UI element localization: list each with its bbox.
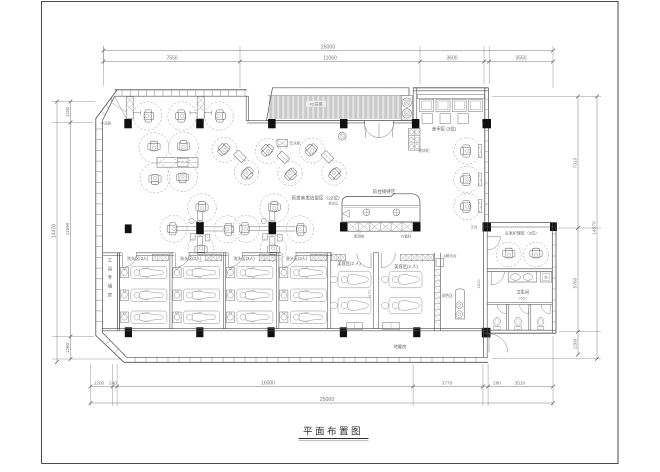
svg-text:7550: 7550 [166,55,177,61]
svg-text:产品柜: 产品柜 [101,121,112,126]
svg-text:1200: 1200 [65,106,70,117]
svg-text:饮水机: 饮水机 [289,141,301,146]
svg-text:11890: 11890 [65,222,70,235]
svg-text:3550: 3550 [515,55,526,61]
svg-text:黑胡桃: 黑胡桃 [354,234,365,239]
svg-text:美容区(2 人): 美容区(2 人) [394,263,418,270]
svg-text:3600: 3600 [446,55,457,61]
svg-text:方管柱: 方管柱 [401,234,412,239]
svg-text:洗头区(3人): 洗头区(3人) [180,255,202,261]
svg-text:25000: 25000 [321,44,336,50]
svg-text:1820: 1820 [476,279,481,289]
svg-text:美容区(2 人): 美容区(2 人) [337,260,361,267]
svg-text:F2扶梯: F2扶梯 [310,101,323,107]
svg-text:3510: 3510 [515,380,526,386]
svg-text:16000: 16000 [261,380,275,386]
svg-text:A服务台: A服务台 [443,253,457,258]
svg-text:艺境: 艺境 [471,225,478,230]
svg-text:3770: 3770 [442,380,453,386]
svg-text:1260: 1260 [65,342,70,353]
svg-text:洗头区(3人): 洗头区(3人) [286,255,308,261]
svg-text:1260: 1260 [573,338,579,349]
svg-text:洗头区(3人): 洗头区(3人) [127,255,149,261]
svg-text:美甲区 (3位): 美甲区 (3位) [432,126,457,133]
svg-text:7310: 7310 [573,157,579,168]
svg-text:地暖房: 地暖房 [394,343,407,350]
svg-text:装饰柜: 装饰柜 [418,148,430,153]
svg-text:剪发美发造型区（22位）: 剪发美发造型区（22位） [291,195,342,202]
svg-text:头发护理区（3位）: 头发护理区（3位） [505,230,539,236]
svg-text:25000: 25000 [320,397,335,403]
svg-text:调色区: 调色区 [442,293,454,298]
svg-text:14470: 14470 [52,224,58,238]
svg-text:240: 240 [109,380,117,385]
svg-text:3550: 3550 [518,295,528,300]
svg-text:1200: 1200 [94,380,105,385]
svg-text:280: 280 [493,380,501,385]
svg-text:洗头区(3人): 洗头区(3人) [233,255,255,261]
svg-text:平面布置图: 平面布置图 [303,426,363,438]
svg-text:美发区: 美发区 [328,201,339,206]
svg-text:前台接待区: 前台接待区 [373,188,396,195]
svg-text:5760: 5760 [573,277,579,288]
svg-text:工具专储房: 工具专储房 [107,258,113,301]
svg-text:11060: 11060 [323,55,337,61]
